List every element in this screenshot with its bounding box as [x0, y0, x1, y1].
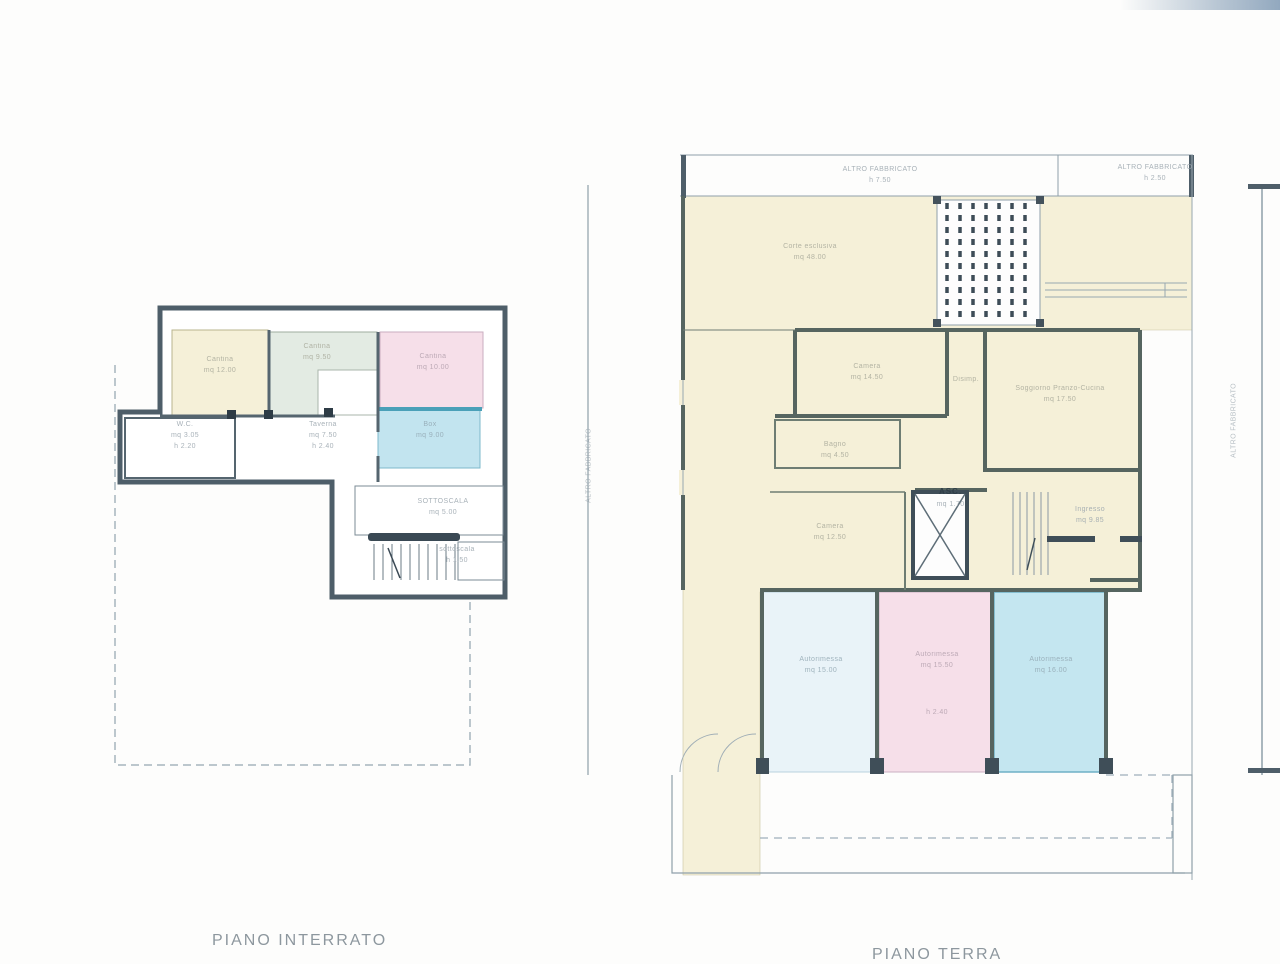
room-label-autorimessa2: Autorimessamq 15.50 h 2.40	[888, 650, 986, 719]
neighbor-label-left-side: ALTRO FABBRICATO	[585, 420, 596, 510]
caption-piano-terra: PIANO TERRA	[872, 946, 1002, 964]
room-label-soggiorno: Soggiorno Pranzo-Cucinamq 17.50	[985, 384, 1135, 406]
neighbor-label-top-left: ALTRO FABBRICATOh 7.50	[790, 165, 970, 187]
room-label-ascensore-area: mq 1.70	[928, 500, 973, 511]
terra-pergola	[933, 196, 1044, 327]
terra-plan-drawing	[575, 140, 1280, 885]
neighbor-label-right-side: ALTRO FABBRICATO	[1230, 375, 1241, 465]
room-label-autorimessa1: Autorimessamq 15.00	[772, 655, 870, 677]
room-label-ingresso: Ingressomq 9.85	[1035, 505, 1145, 527]
room-label-taverna: Tavernamq 7.50h 2.40	[268, 420, 378, 453]
room-label-camera2: Cameramq 12.50	[775, 522, 885, 544]
room-label-cantina-a: Cantinamq 12.00	[175, 355, 265, 377]
room-label-bagno: Bagnomq 4.50	[795, 440, 875, 462]
caption-piano-interrato: PIANO INTERRATO	[212, 932, 387, 950]
room-label-camera1: Cameramq 14.50	[812, 362, 922, 384]
scan-artifact	[1120, 0, 1280, 10]
room-label-cantina-c: Cantinamq 10.00	[388, 352, 478, 374]
room-label-cantina-b: Cantinamq 9.50	[272, 342, 362, 364]
room-label-autorimessa3: Autorimessamq 16.00	[1000, 655, 1102, 677]
room-label-sottoscala: SOTTOSCALAmq 5.00	[388, 497, 498, 519]
room-label-sottoscala2: sottoscalah 1.50	[412, 545, 502, 567]
room-label-disimpegno: Disimp.	[946, 375, 986, 386]
room-label-wc: W.C.mq 3.05h 2.20	[140, 420, 230, 453]
scanned-floorplan-sheet: Cantinamq 12.00 Cantinamq 9.50 Cantinamq…	[0, 0, 1280, 960]
neighbor-label-top-right: ALTRO FABBRICATOh 2.50	[1075, 163, 1235, 185]
room-label-corte: Corte esclusivamq 48.00	[755, 242, 865, 264]
room-label-ascensore-stamp: ASC.	[928, 486, 973, 498]
room-label-box: Boxmq 9.00	[385, 420, 475, 442]
adjacent-sheet-edge	[1240, 175, 1280, 785]
